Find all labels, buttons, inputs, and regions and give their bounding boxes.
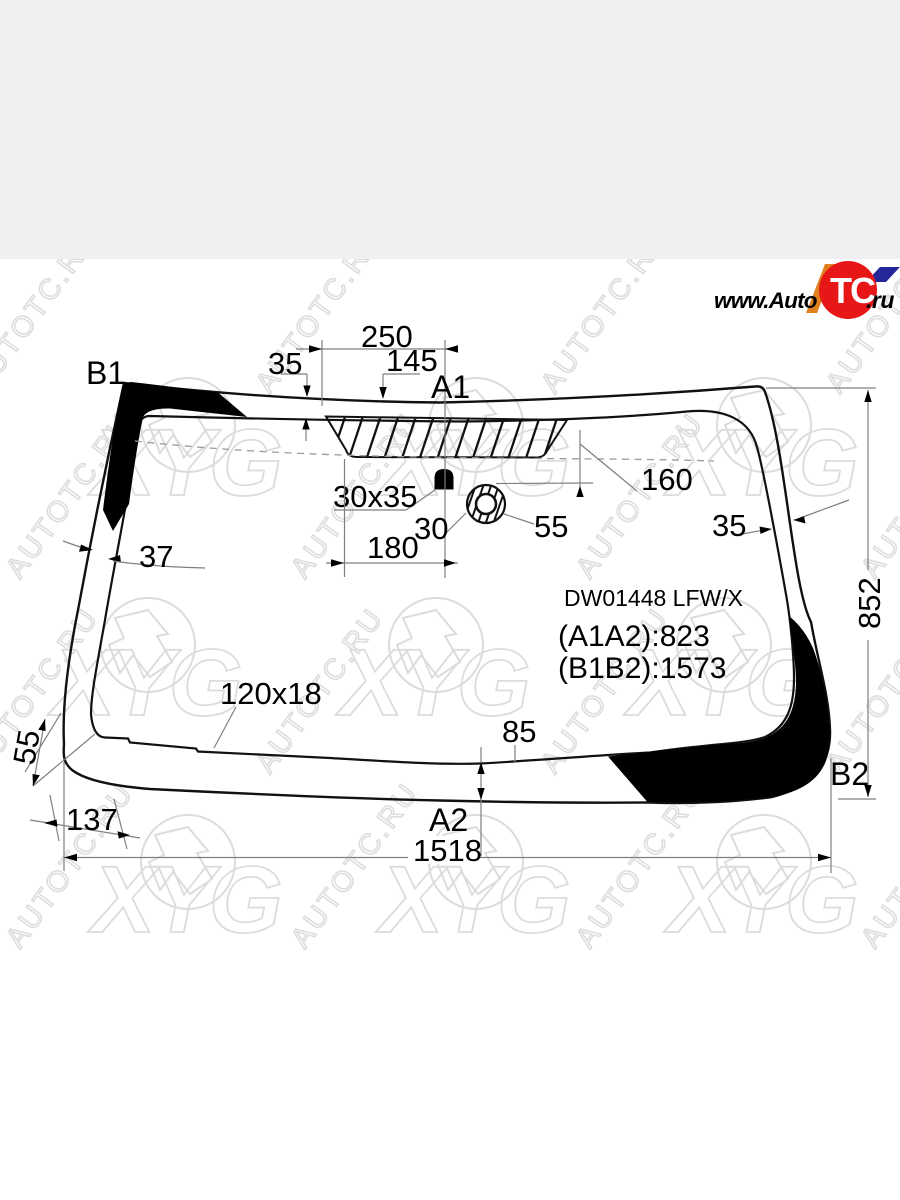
svg-text:DW01448 LFW/X: DW01448 LFW/X [564, 585, 743, 611]
svg-text:145: 145 [386, 343, 438, 378]
svg-text:B2: B2 [830, 756, 869, 792]
svg-text:B1: B1 [86, 355, 125, 391]
svg-text:180: 180 [367, 530, 419, 565]
svg-text:A1: A1 [431, 369, 470, 405]
svg-text:37: 37 [139, 539, 173, 574]
svg-text:120x18: 120x18 [220, 676, 322, 711]
svg-text:35: 35 [268, 346, 302, 381]
svg-text:35: 35 [712, 508, 746, 543]
svg-text:30x35: 30x35 [333, 479, 417, 514]
svg-text:.ru: .ru [866, 287, 894, 313]
svg-text:(A1A2):823: (A1A2):823 [558, 620, 710, 653]
svg-text:www.Auto: www.Auto [714, 288, 818, 313]
svg-text:30: 30 [414, 511, 448, 546]
svg-text:85: 85 [502, 714, 536, 749]
svg-text:160: 160 [641, 462, 693, 497]
svg-text:137: 137 [66, 802, 118, 837]
svg-text:55: 55 [534, 509, 568, 544]
svg-text:1518: 1518 [413, 833, 482, 868]
svg-text:(B1B2):1573: (B1B2):1573 [558, 652, 726, 685]
svg-text:852: 852 [852, 577, 887, 629]
svg-text:55: 55 [6, 727, 46, 767]
